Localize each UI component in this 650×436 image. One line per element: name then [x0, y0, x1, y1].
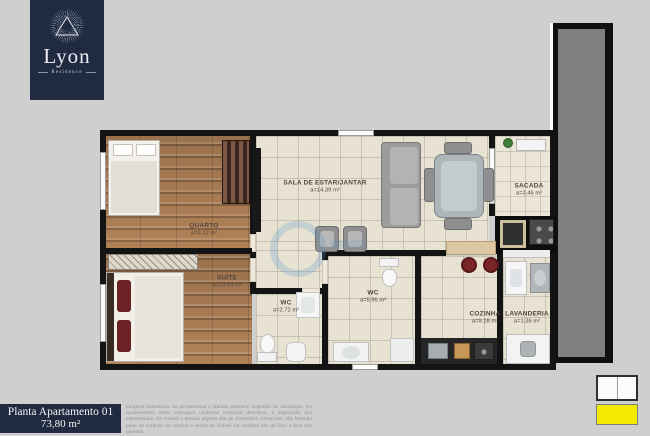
shower-icon — [296, 292, 320, 318]
watermark-text-shape — [330, 240, 366, 249]
suite-bed-icon — [106, 272, 184, 362]
vanity-icon — [333, 342, 369, 362]
pillow-icon — [117, 320, 131, 352]
sacada-label: SACADA a=3.46 m² — [514, 182, 543, 197]
room-area: a=10.54 m² — [212, 282, 242, 289]
watermark-icon — [270, 221, 326, 277]
logo-title: Lyon — [43, 46, 90, 67]
plan-title: Planta Apartamento 01 — [0, 406, 121, 418]
wall-sala-sacada-a — [489, 134, 495, 148]
lyon-logo-panel: Lyon Residence — [30, 0, 104, 100]
toilet-tank — [379, 258, 399, 267]
wall-corridor-wc1-a — [250, 288, 302, 294]
quarto-wardrobe-icon — [222, 140, 250, 204]
dining-chair-icon — [483, 168, 494, 202]
room-name: WC — [273, 299, 299, 307]
room-name: COZINHA — [469, 310, 500, 318]
wc-social-label: WC a=5.96 m² — [360, 289, 386, 304]
quarto-window — [100, 152, 106, 210]
toilet-icon — [260, 334, 275, 353]
wc-suite-label: WC a=2.72 m² — [273, 299, 299, 314]
plan-total-area: 73,80 m² — [0, 418, 121, 430]
dining-chair-icon — [444, 142, 472, 154]
room-area: a=14.39 m² — [283, 187, 366, 194]
footer-title-bar: Planta Apartamento 01 73,80 m² — [0, 404, 121, 433]
blanket-icon — [135, 276, 181, 358]
stool-icon — [461, 257, 477, 273]
headboard-icon — [107, 273, 114, 361]
blanket-icon — [111, 161, 157, 213]
quarto-label: QUARTO a=8.32 m² — [189, 222, 218, 237]
key-plan-building — [596, 375, 638, 401]
adjacent-area-fill — [558, 29, 605, 357]
room-area: a=8.32 m² — [189, 230, 218, 237]
wall-sala-wc2 — [322, 250, 446, 256]
key-plan-highlight-unit — [596, 404, 638, 425]
toilet-tank — [257, 352, 277, 362]
stove-icon — [529, 219, 554, 245]
pillow-icon — [113, 144, 133, 156]
room-name: SUÍTE — [212, 274, 242, 282]
logo-subtitle: Residence — [51, 70, 82, 75]
tv-rack-icon — [253, 148, 261, 232]
room-area: a=5.96 m² — [360, 297, 386, 304]
room-name: LAVANDERIA — [505, 310, 549, 318]
microwave-icon — [500, 220, 526, 248]
room-name: WC — [360, 289, 386, 297]
dining-table-icon — [434, 154, 484, 218]
disclaimer-text: Imagens ilustrativas, as perspectivas e … — [126, 405, 312, 436]
sala-label: SALA DE ESTAR/JANTAR a=14.39 m² — [283, 179, 366, 194]
cozinha-label: COZINHA a=9.18 m² — [469, 310, 500, 325]
logo-subtitle-row: Residence — [38, 70, 95, 75]
room-name: SACADA — [514, 182, 543, 190]
wall-wc1-wc2-b — [322, 284, 328, 366]
wall-sala-sacada-b — [489, 204, 495, 216]
pillow-icon — [136, 144, 156, 156]
toilet-icon — [382, 269, 397, 287]
table-glass — [441, 161, 477, 211]
suite-label: SUÍTE a=10.54 m² — [212, 274, 242, 289]
room-name: SALA DE ESTAR/JANTAR — [283, 179, 366, 187]
kitchen-sink-icon — [428, 343, 448, 359]
bar-counter-icon — [446, 241, 496, 255]
sofa-cushion — [390, 188, 418, 225]
sacada-cabinet-icon — [516, 139, 546, 151]
sofa-icon — [381, 142, 421, 228]
room-area: a=2.72 m² — [273, 307, 299, 314]
room-area: a=1.36 m² — [505, 318, 549, 325]
cooktop-icon — [474, 342, 494, 360]
wall-top — [100, 130, 556, 136]
sala-window — [338, 130, 374, 136]
wc-social-window — [352, 364, 378, 370]
room-area: a=9.18 m² — [469, 318, 500, 325]
dining-chair-icon — [444, 218, 472, 230]
vanity-basin — [342, 346, 360, 359]
kitchen-counter-icon — [421, 338, 497, 364]
washer-door — [520, 341, 536, 357]
lavanderia-label: LAVANDERIA a=1.36 m² — [505, 310, 549, 325]
logo-rule-left — [38, 72, 48, 73]
suite-wardrobe-icon — [108, 254, 198, 270]
shower-icon — [390, 338, 414, 362]
wc-social-door — [322, 260, 328, 284]
laundry-counter-icon — [503, 250, 550, 258]
sofa-cushion — [390, 147, 418, 184]
shower-base — [301, 297, 315, 313]
suite-door — [250, 258, 256, 282]
pillow-icon — [117, 280, 131, 312]
wc-sink-icon — [286, 342, 306, 362]
laundry-sink-icon — [530, 263, 550, 293]
key-plan-divider — [617, 377, 618, 399]
stool-icon — [483, 257, 499, 273]
wall-bottom — [100, 364, 556, 370]
cutting-board-icon — [454, 343, 470, 359]
room-name: QUARTO — [189, 222, 218, 230]
washer-icon — [506, 334, 550, 364]
tank-basin — [510, 269, 522, 287]
room-area: a=3.46 m² — [514, 190, 543, 197]
laundry-tank-icon — [505, 261, 527, 295]
logo-rule-right — [86, 72, 96, 73]
plant-icon — [503, 138, 513, 148]
kitchen-tall-cabinet — [495, 216, 556, 254]
quarto-bed-icon — [108, 140, 160, 216]
sink-basin — [534, 270, 546, 286]
lyon-pyramid-icon — [54, 15, 80, 37]
